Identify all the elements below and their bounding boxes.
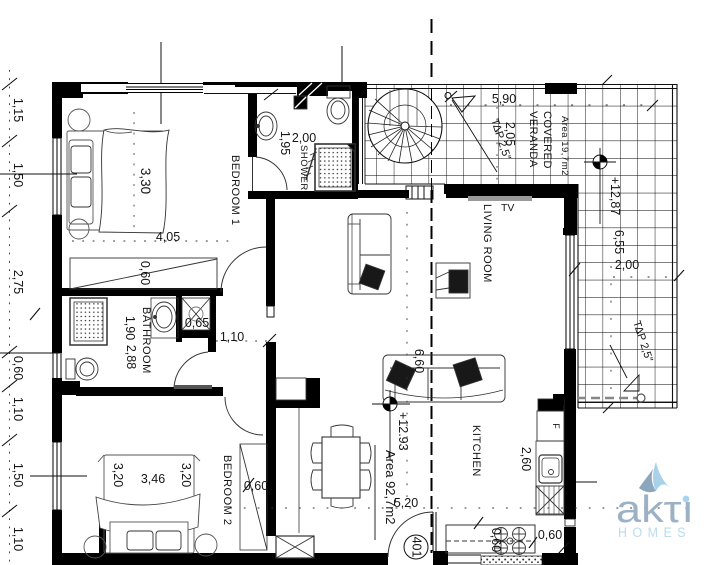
svg-text:2,60: 2,60	[519, 447, 533, 471]
svg-text:0,65: 0,65	[185, 316, 209, 330]
svg-text:3,46: 3,46	[141, 472, 165, 486]
svg-text:TV: TV	[501, 202, 514, 214]
svg-text:1,95: 1,95	[278, 131, 292, 155]
svg-text:3,20: 3,20	[179, 463, 193, 487]
svg-text:5,90: 5,90	[492, 92, 516, 106]
svg-text:3,30: 3,30	[138, 168, 153, 194]
svg-text:HOMES: HOMES	[618, 525, 691, 540]
svg-text:BEDROOM 1: BEDROOM 1	[229, 155, 241, 226]
svg-text:3,20: 3,20	[111, 463, 125, 487]
svg-text:1,15: 1,15	[11, 98, 25, 122]
svg-text:LIVING ROOM: LIVING ROOM	[481, 204, 493, 283]
svg-text:COVERED: COVERED	[541, 111, 553, 169]
svg-text:KITCHEN: KITCHEN	[470, 425, 482, 477]
svg-text:0,60: 0,60	[11, 356, 25, 380]
svg-text:Area 19,7m2: Area 19,7m2	[559, 116, 570, 176]
svg-text:1,10: 1,10	[220, 330, 244, 344]
svg-text:6,55: 6,55	[612, 230, 626, 254]
svg-text:1,10: 1,10	[11, 397, 25, 421]
svg-text:1,50: 1,50	[11, 163, 25, 187]
svg-text:VERANDA: VERANDA	[527, 111, 539, 168]
svg-text:2,88: 2,88	[124, 345, 138, 369]
svg-text:1,90: 1,90	[123, 316, 137, 340]
svg-text:0,60: 0,60	[538, 528, 562, 542]
svg-text:BEDROOM 2: BEDROOM 2	[221, 455, 233, 526]
svg-text:4,05: 4,05	[156, 230, 180, 244]
svg-text:Area 92,7m2: Area 92,7m2	[383, 450, 398, 524]
svg-text:401: 401	[410, 537, 424, 558]
svg-text:+12,87: +12,87	[608, 177, 622, 216]
svg-text:2,75: 2,75	[11, 270, 25, 294]
svg-text:2,00: 2,00	[292, 131, 316, 145]
svg-text:0,60: 0,60	[244, 479, 268, 493]
svg-text:BATHROOM: BATHROOM	[140, 307, 152, 374]
svg-text:1,50: 1,50	[11, 463, 25, 487]
svg-text:0,60: 0,60	[489, 528, 503, 552]
svg-text:F: F	[551, 423, 561, 429]
svg-text:+12.93: +12.93	[396, 412, 410, 451]
svg-text:6,60: 6,60	[412, 349, 426, 373]
svg-text:SHOWER: SHOWER	[298, 145, 309, 191]
svg-text:2,00: 2,00	[615, 258, 639, 272]
svg-text:0,60: 0,60	[138, 261, 152, 285]
svg-text:1,10: 1,10	[11, 527, 25, 551]
